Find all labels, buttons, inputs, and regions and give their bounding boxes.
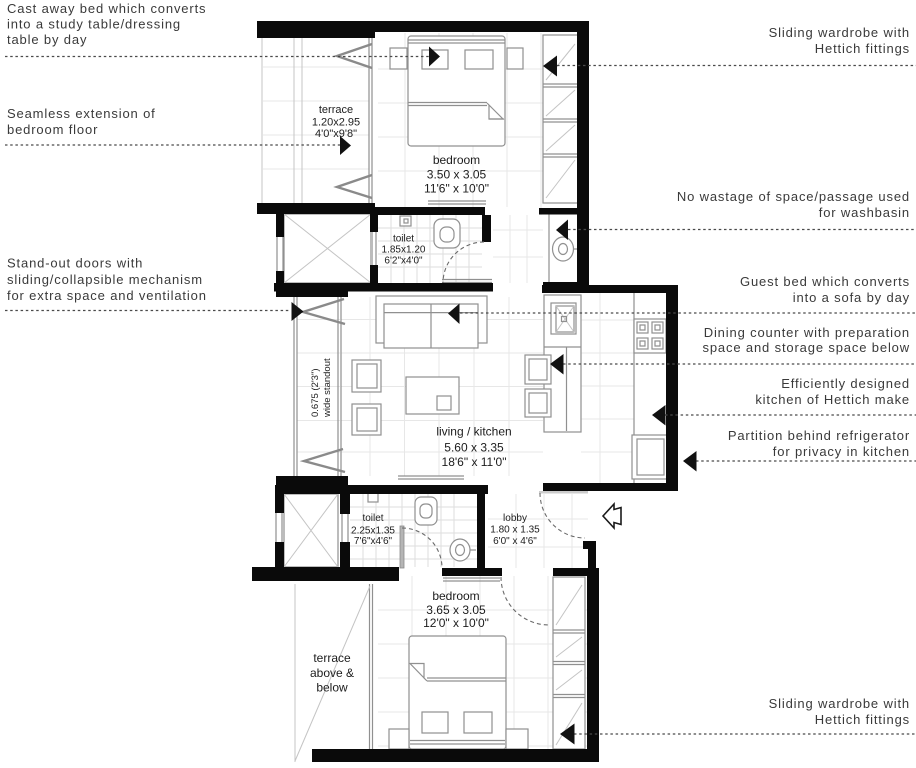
svg-text:12'0" x 10'0": 12'0" x 10'0" xyxy=(423,616,489,630)
svg-text:bedroom: bedroom xyxy=(433,153,480,167)
svg-text:3.65 x 3.05: 3.65 x 3.05 xyxy=(426,603,486,617)
svg-text:bedroom: bedroom xyxy=(432,589,479,603)
svg-text:1.20x2.95: 1.20x2.95 xyxy=(312,117,360,129)
svg-text:1.85x1.20: 1.85x1.20 xyxy=(382,245,426,256)
svg-text:11'6" x 10'0": 11'6" x 10'0" xyxy=(424,182,489,196)
svg-text:kitchen of Hettich make: kitchen of Hettich make xyxy=(755,392,910,407)
svg-text:Sliding wardrobe with: Sliding wardrobe with xyxy=(769,25,910,40)
svg-text:for privacy in kitchen: for privacy in kitchen xyxy=(773,444,910,459)
svg-text:Sliding wardrobe with: Sliding wardrobe with xyxy=(769,696,910,711)
svg-text:living / kitchen: living / kitchen xyxy=(436,425,511,439)
svg-text:0.675 (2'3"): 0.675 (2'3") xyxy=(310,369,321,418)
svg-text:bedroom floor: bedroom floor xyxy=(7,122,98,137)
svg-text:space and storage space below: space and storage space below xyxy=(703,340,911,355)
svg-text:18'6" x 11'0": 18'6" x 11'0" xyxy=(442,455,507,469)
svg-text:Hettich fittings: Hettich fittings xyxy=(815,712,910,727)
svg-text:6'2"x4'0": 6'2"x4'0" xyxy=(384,256,423,267)
svg-text:Guest bed which converts: Guest bed which converts xyxy=(740,274,910,289)
svg-text:Dining counter with preparatio: Dining counter with preparation xyxy=(704,325,910,340)
svg-text:above &: above & xyxy=(310,666,354,680)
svg-text:Efficiently designed: Efficiently designed xyxy=(781,376,910,391)
svg-text:1.80 x 1.35: 1.80 x 1.35 xyxy=(490,525,540,536)
svg-text:2.25x1.35: 2.25x1.35 xyxy=(351,526,395,537)
svg-text:for extra space and ventilatio: for extra space and ventilation xyxy=(7,288,207,303)
svg-text:toilet: toilet xyxy=(362,513,383,524)
svg-text:wide standout: wide standout xyxy=(322,358,333,418)
svg-text:Partition behind refrigerator: Partition behind refrigerator xyxy=(728,428,910,443)
svg-text:terrace: terrace xyxy=(319,104,353,116)
svg-text:4'0"x9'8": 4'0"x9'8" xyxy=(315,128,357,140)
svg-text:No wastage of space/passage us: No wastage of space/passage used xyxy=(677,189,910,204)
svg-text:lobby: lobby xyxy=(503,513,527,524)
svg-text:Hettich fittings: Hettich fittings xyxy=(815,41,910,56)
svg-text:sliding/collapsible mechanism: sliding/collapsible mechanism xyxy=(7,272,203,287)
svg-text:below: below xyxy=(316,681,348,695)
svg-text:into a sofa by day: into a sofa by day xyxy=(793,290,910,305)
svg-text:into a study table/dressing: into a study table/dressing xyxy=(7,17,181,32)
svg-text:toilet: toilet xyxy=(393,234,414,245)
svg-text:Seamless extension of: Seamless extension of xyxy=(7,106,156,121)
svg-text:Stand-out doors with: Stand-out doors with xyxy=(7,256,143,271)
svg-text:terrace: terrace xyxy=(313,651,351,665)
svg-text:3.50 x 3.05: 3.50 x 3.05 xyxy=(427,168,487,182)
svg-text:Cast away bed which converts: Cast away bed which converts xyxy=(7,1,206,16)
svg-text:6'0" x 4'6": 6'0" x 4'6" xyxy=(493,536,537,547)
svg-text:7'6"x4'6": 7'6"x4'6" xyxy=(354,536,393,547)
svg-text:table by day: table by day xyxy=(7,32,87,47)
svg-text:for washbasin: for washbasin xyxy=(819,205,910,220)
svg-text:5.60 x 3.35: 5.60 x 3.35 xyxy=(444,441,504,455)
